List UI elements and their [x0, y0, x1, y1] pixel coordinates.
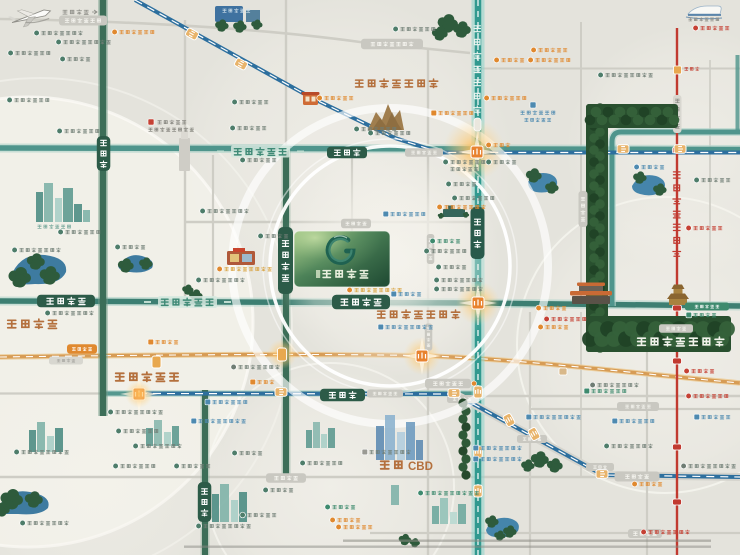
svg-text:CBD: CBD — [408, 461, 433, 473]
